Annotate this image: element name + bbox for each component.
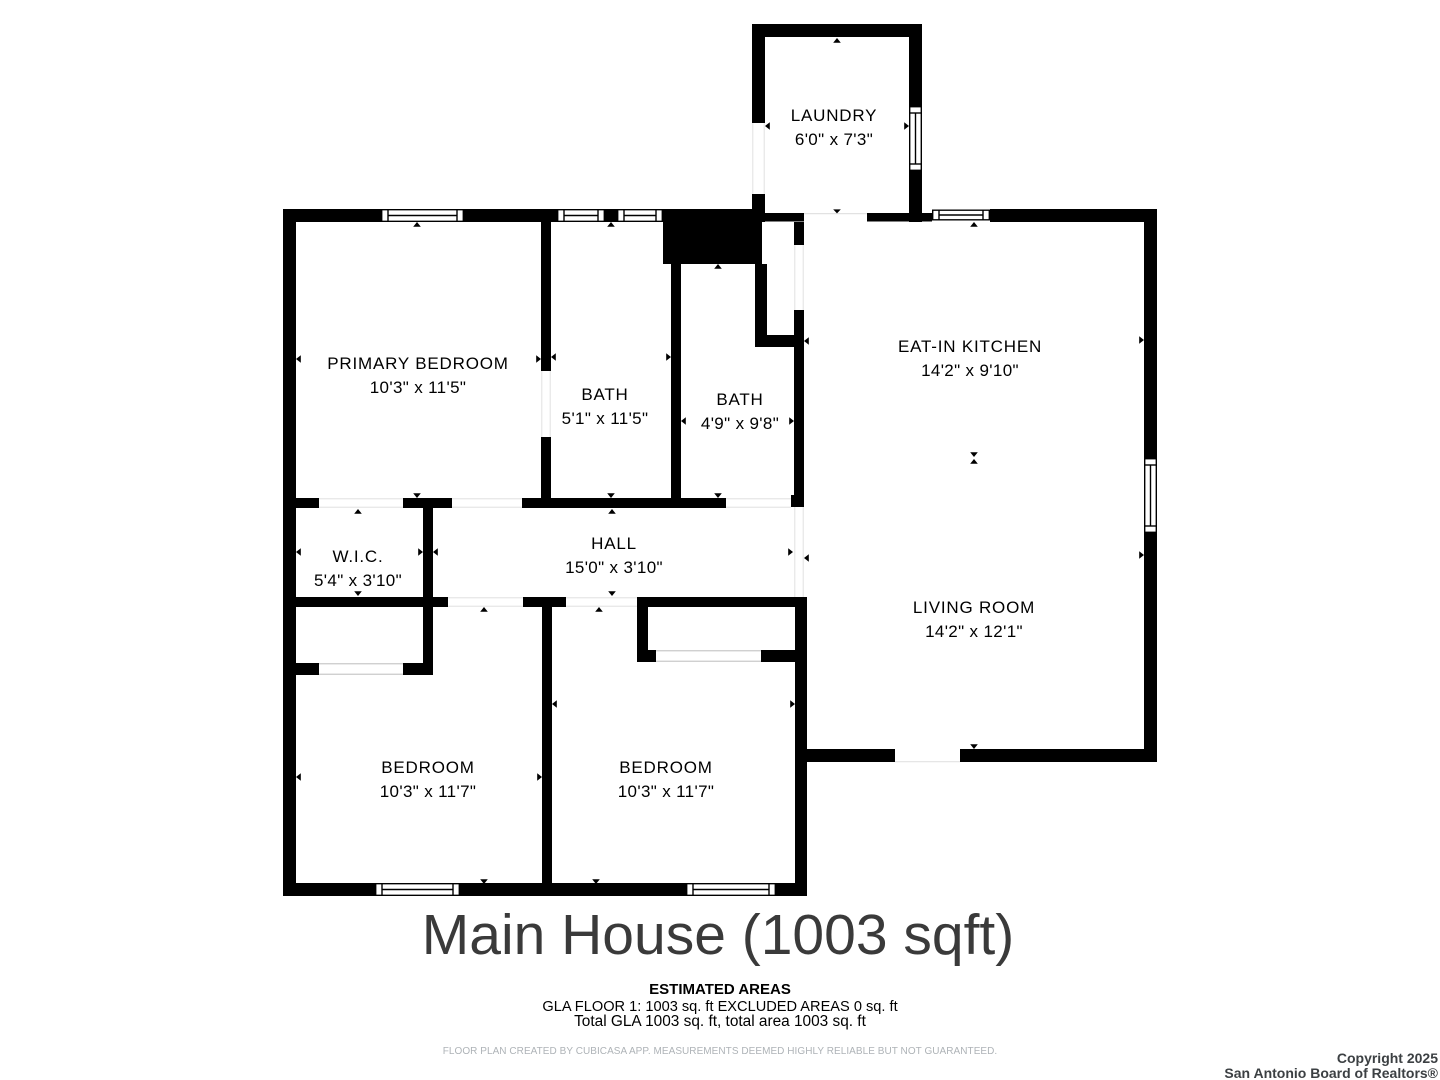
svg-text:BATH: BATH — [716, 390, 763, 409]
svg-text:4'9" x 9'8": 4'9" x 9'8" — [701, 414, 779, 433]
svg-text:14'2" x 9'10": 14'2" x 9'10" — [921, 361, 1019, 380]
svg-text:PRIMARY BEDROOM: PRIMARY BEDROOM — [327, 354, 508, 373]
svg-text:EAT-IN KITCHEN: EAT-IN KITCHEN — [898, 337, 1042, 356]
svg-text:10'3" x 11'7": 10'3" x 11'7" — [380, 782, 477, 801]
svg-text:HALL: HALL — [591, 534, 637, 553]
svg-text:15'0" x 3'10": 15'0" x 3'10" — [565, 558, 663, 577]
svg-text:BEDROOM: BEDROOM — [619, 758, 712, 777]
svg-text:Total GLA 1003 sq. ft, total a: Total GLA 1003 sq. ft, total area 1003 s… — [574, 1013, 866, 1030]
svg-text:Copyright 2025: Copyright 2025 — [1337, 1050, 1438, 1066]
svg-text:ESTIMATED AREAS: ESTIMATED AREAS — [649, 981, 791, 998]
svg-text:6'0" x 7'3": 6'0" x 7'3" — [795, 130, 873, 149]
svg-text:10'3" x 11'7": 10'3" x 11'7" — [618, 782, 715, 801]
svg-text:FLOOR PLAN CREATED BY CUBICASA: FLOOR PLAN CREATED BY CUBICASA APP. MEAS… — [443, 1046, 998, 1057]
svg-text:10'3" x 11'5": 10'3" x 11'5" — [370, 378, 467, 397]
svg-text:5'4" x 3'10": 5'4" x 3'10" — [314, 571, 402, 590]
svg-text:San Antonio Board of Realtors®: San Antonio Board of Realtors® — [1224, 1065, 1438, 1080]
svg-text:LAUNDRY: LAUNDRY — [791, 106, 878, 125]
svg-text:BATH: BATH — [581, 385, 628, 404]
svg-text:LIVING ROOM: LIVING ROOM — [913, 598, 1035, 617]
svg-text:Main House (1003 sqft): Main House (1003 sqft) — [422, 903, 1014, 967]
svg-text:W.I.C.: W.I.C. — [332, 547, 383, 566]
svg-text:14'2" x 12'1": 14'2" x 12'1" — [925, 622, 1023, 641]
svg-text:5'1" x 11'5": 5'1" x 11'5" — [562, 409, 649, 428]
svg-text:BEDROOM: BEDROOM — [381, 758, 474, 777]
